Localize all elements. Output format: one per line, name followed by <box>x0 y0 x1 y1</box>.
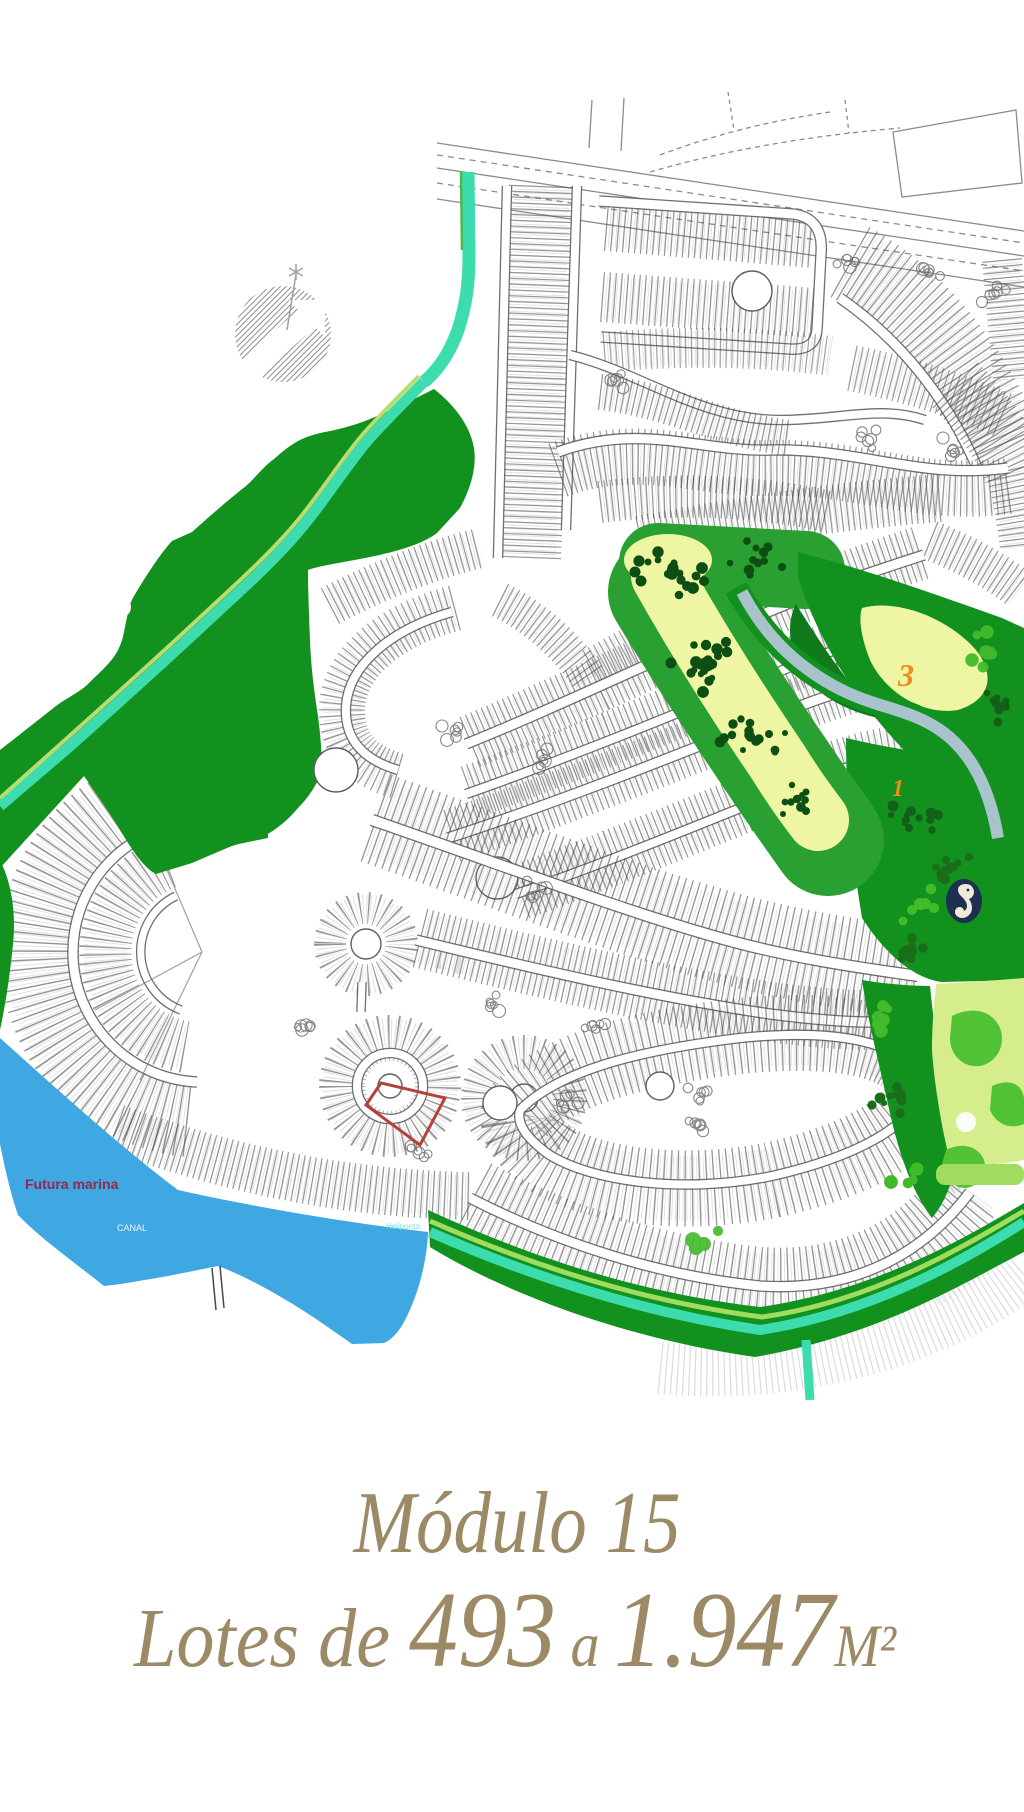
svg-text:Heliponto: Heliponto <box>386 1222 420 1231</box>
svg-text:1: 1 <box>892 776 904 802</box>
svg-text:3: 3 <box>897 657 914 693</box>
svg-text:CANAL: CANAL <box>117 1223 147 1233</box>
svg-text:Módulo 15: Módulo 15 <box>352 1475 681 1572</box>
svg-text:Futura marina: Futura marina <box>25 1176 119 1192</box>
